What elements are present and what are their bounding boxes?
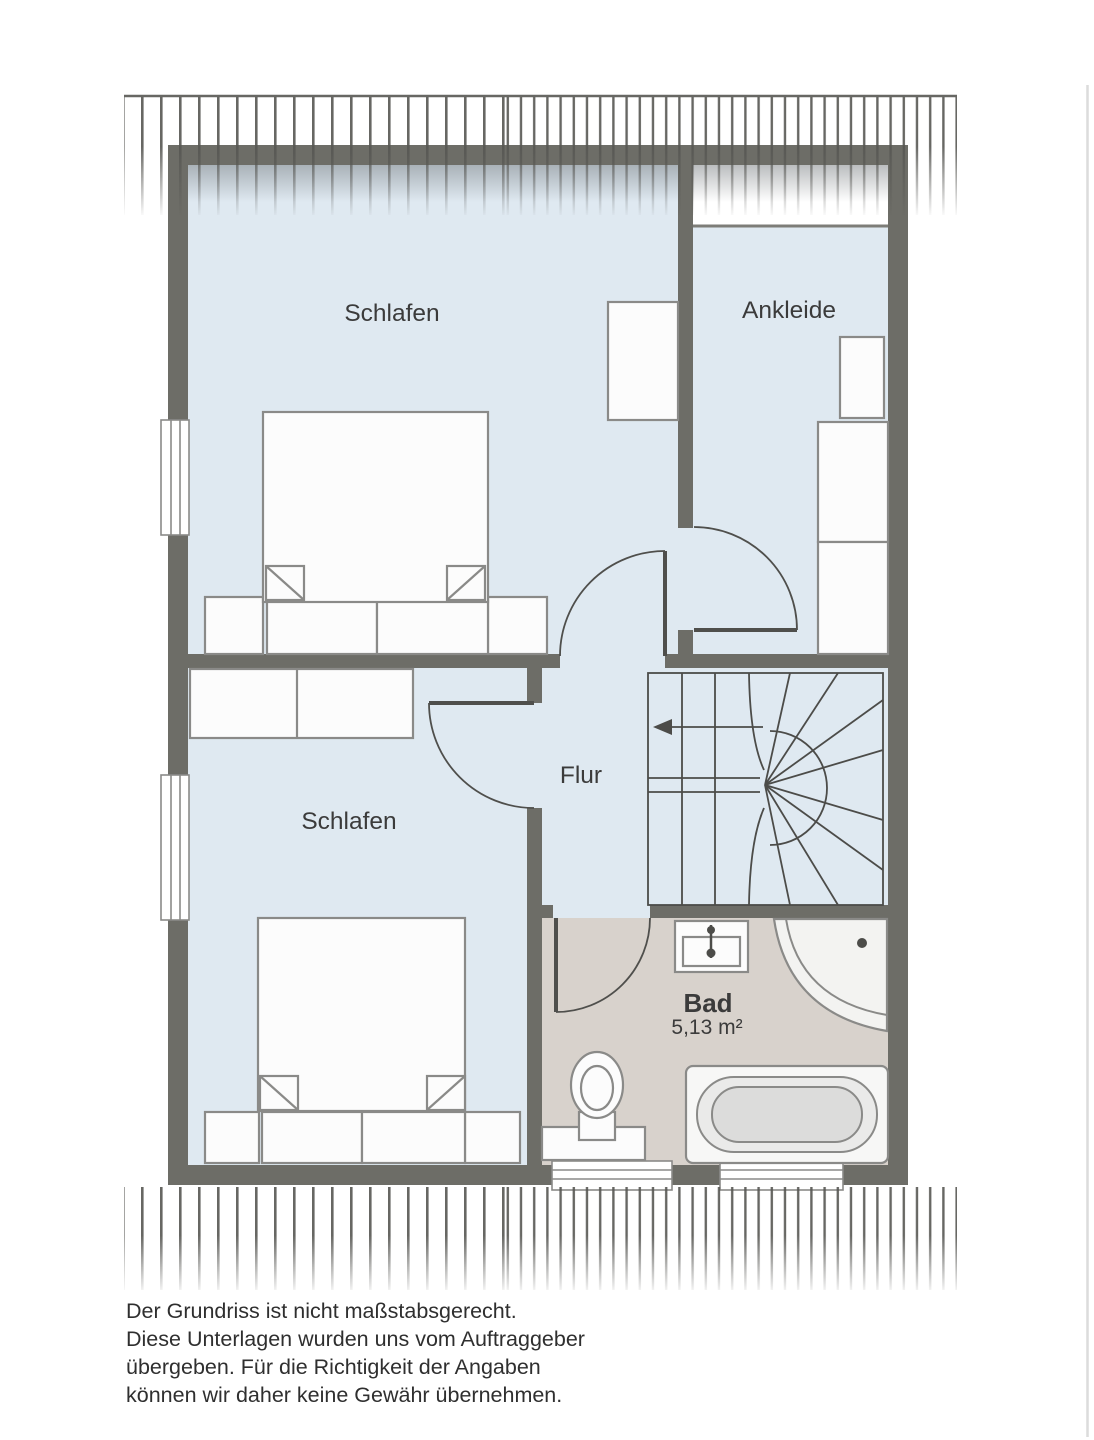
bed-base-right xyxy=(377,601,488,654)
window-bedroom-top-left-wall xyxy=(161,420,189,535)
nightstand-left xyxy=(205,1112,259,1163)
disclaimer-line-3: übergeben. Für die Richtigkeit der Angab… xyxy=(126,1355,541,1379)
nightstand-right xyxy=(488,597,547,654)
nightstand-right xyxy=(465,1112,520,1163)
wall-bath-top-right xyxy=(650,905,888,918)
label-hallway: Flur xyxy=(560,762,602,789)
wall-dressing-divider-stub xyxy=(678,630,693,668)
roof-hatching-bottom xyxy=(124,1187,957,1290)
label-bathroom: Bad xyxy=(683,988,732,1018)
sink xyxy=(675,921,748,972)
wall-hall-bedroom-lower xyxy=(527,808,542,1165)
disclaimer: Der Grundriss ist nicht maßstabsgerecht.… xyxy=(126,1299,585,1407)
window-bedroom-bottom-left-wall xyxy=(161,775,189,920)
wall-dressing-divider-upper xyxy=(678,165,693,528)
wardrobe-bedroom-top xyxy=(608,302,678,420)
disclaimer-line-4: können wir daher keine Gewähr übernehmen… xyxy=(126,1383,562,1407)
floor-plan-page: Schlafen Ankleide Schlafen Flur Bad 5,13… xyxy=(0,0,1094,1440)
window-bathroom-bottom-2 xyxy=(720,1161,843,1190)
wall-bath-top-left-stub xyxy=(542,905,553,918)
dressing-wardrobe-small xyxy=(840,337,884,418)
label-dressing-room: Ankleide xyxy=(742,297,836,324)
disclaimer-line-1: Der Grundriss ist nicht maßstabsgerecht. xyxy=(126,1299,517,1323)
bathtub xyxy=(686,1066,888,1163)
window-bathroom-bottom-1 xyxy=(552,1161,672,1190)
nightstand-left xyxy=(205,597,263,654)
roof-hatching-top xyxy=(124,95,957,215)
floor-plan-drawing: Schlafen Ankleide Schlafen Flur Bad 5,13… xyxy=(0,0,1094,1440)
dressing-wardrobe-low xyxy=(818,542,888,654)
bed-base-left xyxy=(262,1112,362,1163)
wall-bedrooms-divider-right xyxy=(665,654,908,668)
shower-drain xyxy=(857,938,867,948)
label-bedroom-bottom: Schlafen xyxy=(301,808,396,835)
label-bedroom-top: Schlafen xyxy=(344,300,439,327)
wall-bedrooms-divider-left xyxy=(168,654,560,668)
bed-base-left xyxy=(267,601,377,654)
wardrobe-bedroom-bottom xyxy=(190,669,413,738)
disclaimer-line-2: Diese Unterlagen wurden uns vom Auftragg… xyxy=(126,1327,585,1351)
bed-base-right xyxy=(362,1112,465,1163)
dressing-wardrobe-mid xyxy=(818,422,888,542)
wall-hall-bedroom-upper xyxy=(527,668,542,703)
label-bathroom-area: 5,13 m² xyxy=(671,1016,742,1039)
